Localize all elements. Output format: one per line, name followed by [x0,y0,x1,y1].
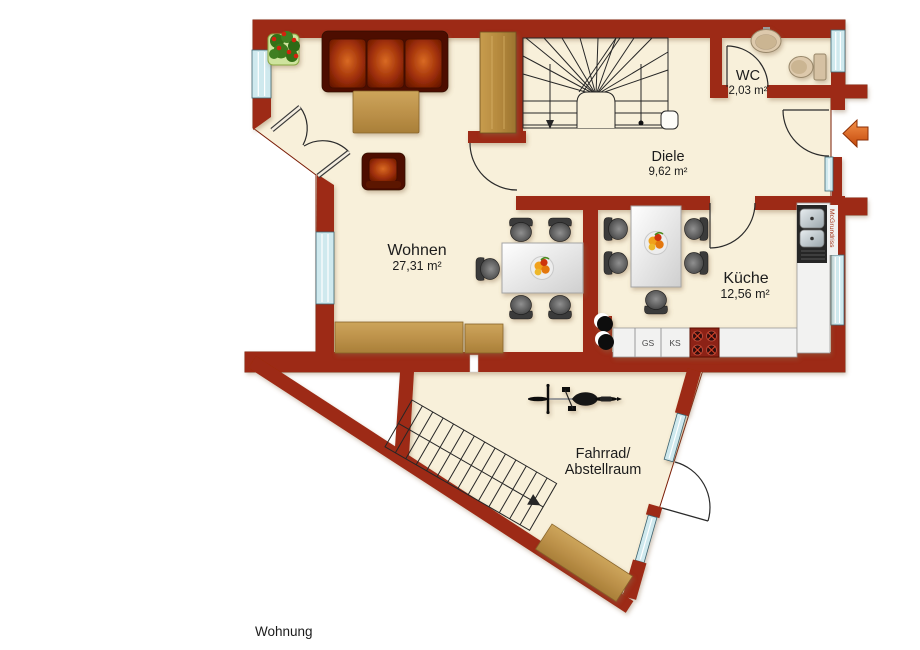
room-label-abstellraum-2: Abstellraum [565,462,642,478]
plant-icon [268,31,300,65]
wall-joint-gap [470,355,478,372]
window-wc [831,30,845,72]
window-wohnen-lower-left [316,232,334,304]
room-area-wohnen: 27,31 m² [392,259,441,273]
toilet [789,54,826,80]
room-area-diele: 9,62 m² [649,166,688,178]
room-area-wc: 2,03 m² [729,85,768,97]
room-label-abstellraum-1: Fahrrad/ [576,446,632,462]
stair-newel [661,111,678,129]
room-label-wohnen: Wohnen [387,242,446,259]
sideboard-short [465,324,503,353]
fridge-label: KS [669,338,681,348]
dishwasher-label: GS [642,338,655,348]
wall-entry-below [832,157,842,198]
wall-wc-bottom-right [767,85,867,98]
sideboard-long [335,322,463,353]
stair-well [577,92,615,128]
stove [690,328,719,357]
room-label-diele: Diele [651,149,684,165]
floorplan-page: GS KS [0,0,920,650]
plan-caption: Wohnung [255,624,313,639]
kitchen-sink [797,205,827,263]
room-area-kueche: 12,56 m² [720,287,769,301]
armchair [362,153,405,190]
room-label-wc: WC [736,68,760,84]
floorplan-drawing: GS KS [0,0,920,650]
fruit-bowl [531,257,554,280]
window-entry-sidelight [825,157,833,191]
room-label-kueche: Küche [723,270,768,287]
entry-arrow-icon [843,120,868,147]
window-kueche [831,255,844,325]
wardrobe [480,32,516,133]
sofa [322,31,448,92]
coffee-table [353,91,419,133]
wall-wc-bottom-left [710,85,728,98]
fruit-bowl [645,232,668,255]
watermark-text: McGrundriss [828,209,835,248]
